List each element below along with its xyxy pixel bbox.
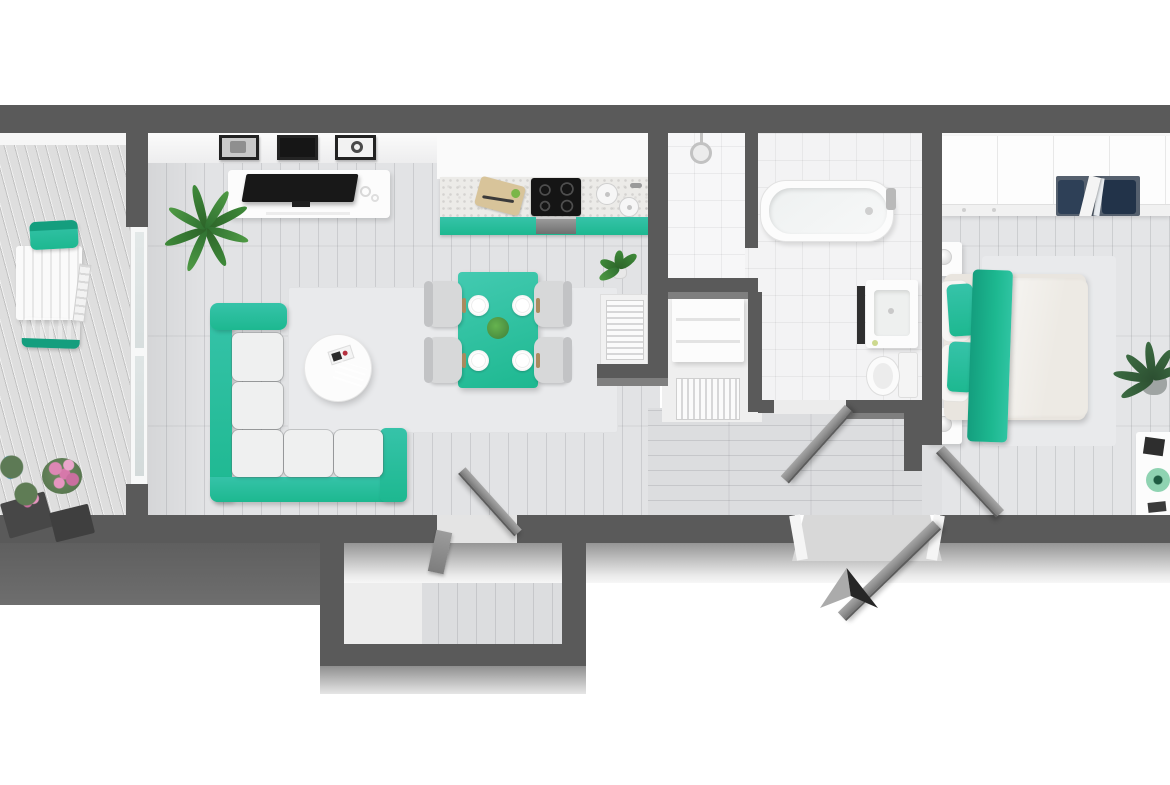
balcony-parapet-front bbox=[0, 543, 333, 605]
wall-below-shower bbox=[660, 278, 758, 292]
sofa-cushion bbox=[334, 430, 383, 477]
cutlery bbox=[462, 353, 466, 368]
tub-drain bbox=[865, 207, 873, 215]
wardrobe-handle bbox=[992, 208, 996, 212]
entrance-arrow-marker bbox=[820, 568, 878, 608]
table-centerpiece bbox=[487, 317, 509, 339]
cutlery bbox=[536, 298, 540, 313]
floor-plan-canvas bbox=[0, 0, 1170, 785]
sofa-cushion bbox=[232, 430, 283, 477]
duvet bbox=[1002, 278, 1088, 418]
bedroom-desk bbox=[1136, 432, 1170, 520]
shower-arm bbox=[700, 133, 703, 144]
hanging-clothes bbox=[1102, 180, 1136, 214]
wall-bottom-right bbox=[940, 515, 1170, 543]
wardrobe-handle bbox=[962, 208, 966, 212]
bathroom-vanity bbox=[866, 280, 918, 348]
sink-basin bbox=[596, 183, 618, 205]
drain bbox=[627, 205, 632, 210]
bouquet-blue bbox=[0, 452, 26, 482]
glass-pane bbox=[135, 356, 144, 476]
decor-dish bbox=[360, 186, 371, 197]
wardrobe bbox=[942, 136, 1170, 216]
oven-front bbox=[536, 217, 576, 234]
tv-stand bbox=[292, 201, 310, 207]
decor-dish bbox=[371, 194, 379, 202]
sofa-front-bottom bbox=[210, 477, 403, 502]
wall-picture-frame bbox=[219, 135, 259, 160]
balcony-glass-door bbox=[130, 226, 148, 484]
outdoor-table bbox=[16, 246, 82, 320]
vanity-mirror bbox=[857, 286, 865, 344]
place-setting-plate bbox=[468, 350, 489, 371]
place-setting-plate bbox=[468, 295, 489, 316]
bed-runner-throw bbox=[967, 269, 1013, 442]
wallface-below-shower bbox=[660, 292, 758, 299]
sofa-armrest-top bbox=[210, 303, 287, 330]
storage-wall-front bbox=[320, 666, 586, 694]
booklet-cover-dot bbox=[342, 350, 348, 356]
cutlery bbox=[536, 353, 540, 368]
bathtub bbox=[760, 180, 894, 242]
sink-basin bbox=[619, 197, 639, 217]
outdoor-chair-top bbox=[29, 220, 78, 250]
kitchen-plant bbox=[595, 240, 643, 288]
shower-head bbox=[690, 142, 712, 164]
outdoor-chair-bottom bbox=[21, 317, 80, 349]
basin-drain bbox=[888, 308, 894, 314]
kitchen-upper-block bbox=[437, 133, 650, 179]
dining-chair bbox=[426, 337, 462, 383]
wall-balcony-stub-top bbox=[126, 133, 148, 227]
sofa-back-left bbox=[210, 308, 232, 502]
hallway-floor bbox=[648, 408, 935, 515]
double-bed bbox=[940, 272, 1090, 444]
tub-faucet bbox=[886, 188, 896, 210]
coffee-table bbox=[305, 335, 371, 401]
bathroom-doorway-floor bbox=[774, 400, 846, 414]
wall-utility-right bbox=[748, 292, 762, 412]
sectional-sofa bbox=[205, 303, 407, 505]
knife bbox=[482, 195, 514, 203]
desk-item bbox=[1148, 501, 1167, 513]
wall-hall-stub bbox=[904, 413, 922, 471]
wardrobe-open-section bbox=[1056, 176, 1140, 216]
wallface-kitchen-hall bbox=[597, 378, 668, 386]
wall-bath-bottom-left bbox=[758, 400, 774, 413]
picture-frame-decor bbox=[1143, 437, 1165, 457]
drain bbox=[605, 192, 610, 197]
dining-chair bbox=[426, 281, 462, 327]
sofa-cushion bbox=[232, 382, 283, 429]
drawer-line bbox=[266, 212, 350, 215]
soap-item bbox=[872, 340, 878, 346]
wall-picture-frame bbox=[277, 135, 318, 160]
booklet-teal bbox=[333, 360, 367, 387]
toilet-bowl bbox=[866, 356, 900, 396]
toilet-seat bbox=[873, 363, 893, 389]
sofa-cushion bbox=[232, 333, 283, 381]
place-setting-plate bbox=[512, 350, 533, 371]
apple bbox=[510, 188, 521, 199]
cabinet-shadow-line bbox=[676, 340, 740, 343]
cooktop bbox=[531, 178, 581, 216]
bouquet-pink-large bbox=[44, 456, 82, 492]
faucet bbox=[630, 183, 642, 188]
cutlery bbox=[462, 298, 466, 313]
wall-balcony-stub-bottom bbox=[126, 484, 148, 515]
sofa-cushion bbox=[284, 430, 333, 477]
utility-radiator bbox=[676, 378, 740, 420]
bottom-wall-front bbox=[333, 543, 1170, 583]
wall-storage-bottom bbox=[320, 644, 586, 666]
wall-bath-bedroom bbox=[922, 133, 942, 445]
wall-top bbox=[0, 105, 1170, 133]
bedroom-plant bbox=[1118, 340, 1170, 410]
place-setting-plate bbox=[512, 295, 533, 316]
kitchen-radiator bbox=[606, 300, 644, 360]
photo-emblem bbox=[351, 141, 363, 153]
sofa-armrest-right bbox=[380, 428, 407, 502]
wall-kitchen-bath bbox=[648, 133, 668, 364]
wall-bath-bottom-right bbox=[846, 400, 922, 413]
cabinet-shadow-line bbox=[676, 318, 740, 321]
tv-screen bbox=[242, 174, 359, 202]
wall-storage-right bbox=[562, 520, 586, 666]
green-disc-decor bbox=[1146, 468, 1170, 492]
toilet-tank bbox=[898, 352, 918, 398]
wall-bottom-middle bbox=[517, 515, 795, 543]
bouquet-pink-small bbox=[14, 482, 44, 512]
wall-kitchen-hall bbox=[597, 364, 668, 378]
utility-cabinet bbox=[672, 298, 744, 362]
photo-content bbox=[230, 141, 246, 153]
living-plant bbox=[158, 176, 253, 271]
wall-shower-tub bbox=[745, 133, 758, 248]
chair-backrest bbox=[29, 220, 77, 231]
wall-picture-frame bbox=[335, 135, 376, 160]
glass-pane bbox=[135, 232, 144, 348]
